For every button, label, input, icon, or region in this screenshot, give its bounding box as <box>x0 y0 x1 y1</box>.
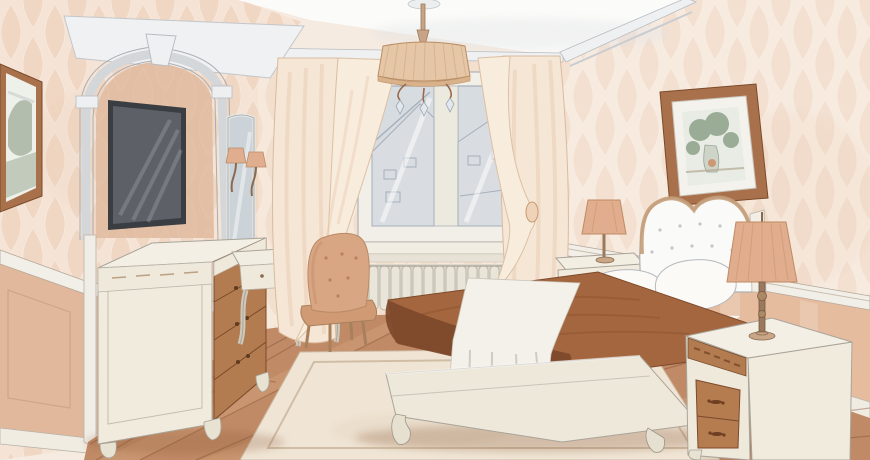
sconce-shade <box>226 148 246 163</box>
right-wall-picture <box>660 84 768 206</box>
nightstand-side <box>748 342 852 460</box>
left-wall-picture <box>0 64 42 212</box>
tv <box>108 100 186 230</box>
lamp-shade <box>582 200 626 234</box>
sconce-shade <box>246 152 266 167</box>
nightstand-foot <box>689 450 702 460</box>
bedroom-illustration <box>0 0 870 460</box>
window-mullion <box>434 86 458 226</box>
nightstand-drawers <box>696 380 740 448</box>
corner-pilaster <box>84 235 96 448</box>
tieback <box>526 202 538 222</box>
